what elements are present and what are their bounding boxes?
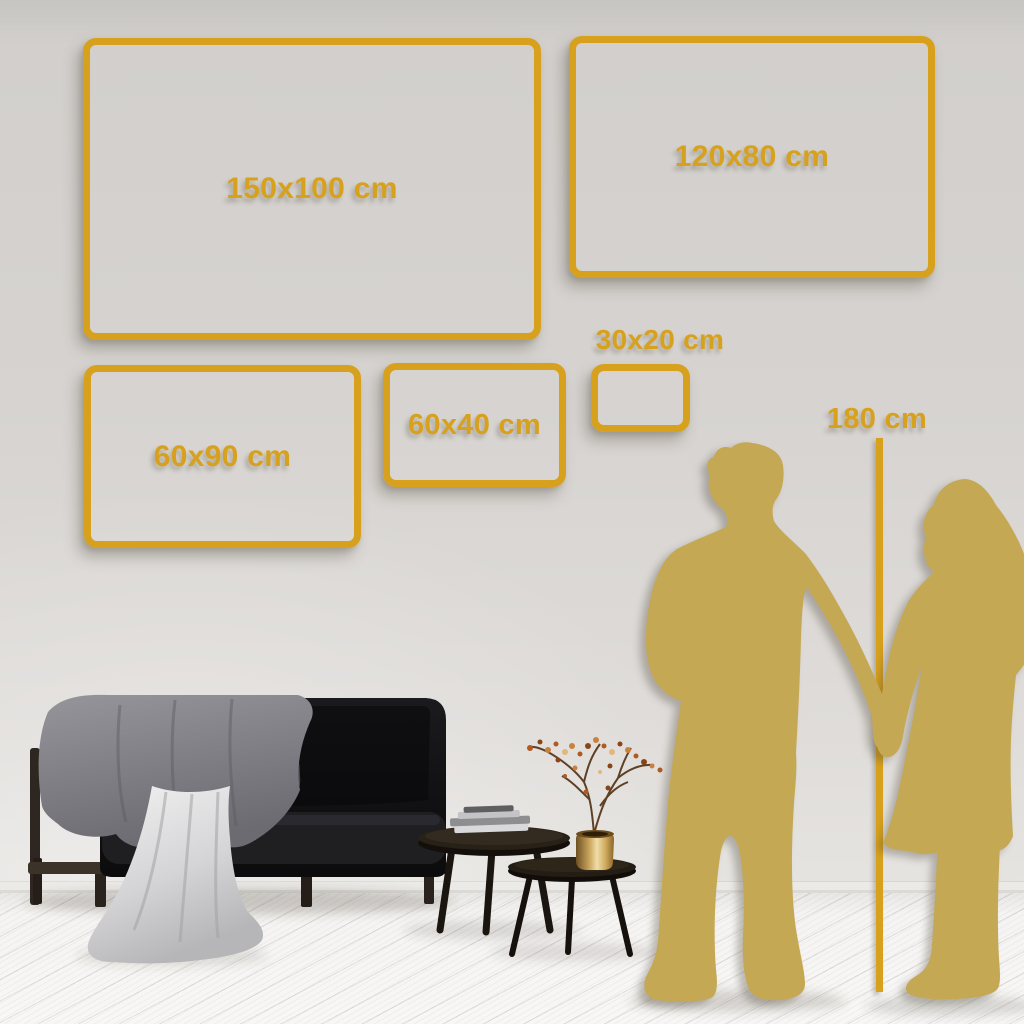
man-silhouette	[644, 442, 894, 1002]
size-label-60x90: 60x90 cm	[154, 440, 292, 474]
woman-silhouette	[876, 479, 1024, 854]
size-label-120x80: 120x80 cm	[675, 140, 830, 174]
wall-art-size-guide: 150x100 cm 120x80 cm 60x90 cm 60x40 cm 3…	[0, 0, 1024, 1024]
size-frame-120x80: 120x80 cm	[569, 36, 935, 278]
size-label-150x100: 150x100 cm	[226, 172, 398, 206]
size-frame-150x100: 150x100 cm	[83, 38, 541, 340]
woman-silhouette-legs	[906, 840, 1000, 999]
height-label: 180 cm	[792, 403, 962, 436]
size-label-60x40: 60x40 cm	[408, 409, 541, 442]
size-frame-60x40: 60x40 cm	[383, 363, 566, 487]
sofa	[28, 695, 448, 963]
books-stack	[450, 805, 531, 834]
size-frame-60x90: 60x90 cm	[84, 365, 361, 548]
brass-vase	[576, 830, 614, 870]
size-frame-30x20	[591, 364, 690, 432]
size-label-30x20: 30x20 cm	[575, 324, 745, 356]
coffee-table-small	[508, 857, 636, 954]
